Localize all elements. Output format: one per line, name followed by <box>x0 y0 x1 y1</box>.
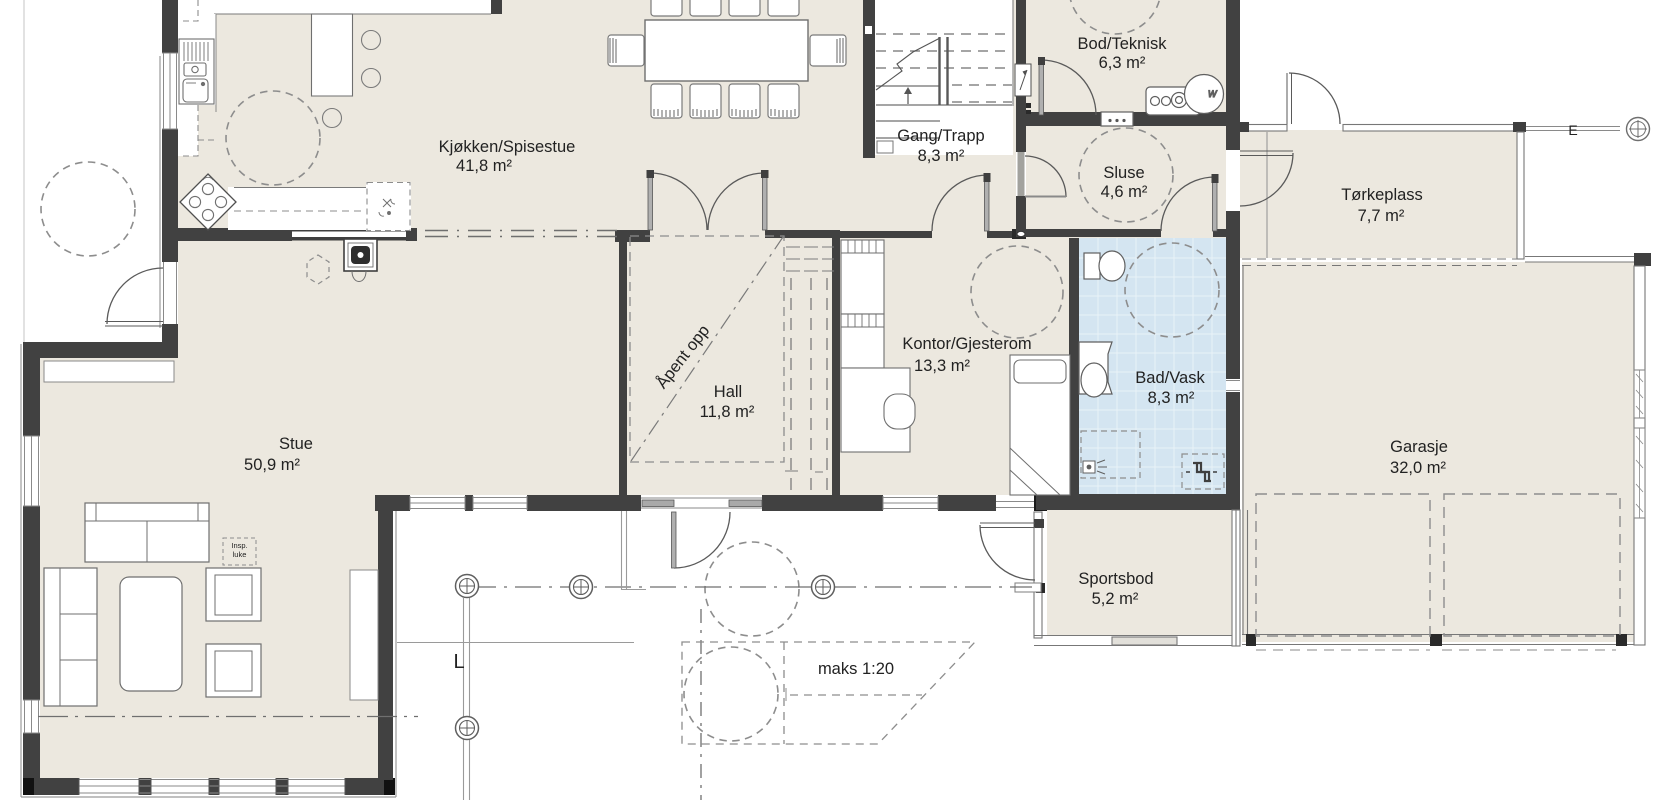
svg-text:41,8 m²: 41,8 m² <box>456 157 512 175</box>
svg-text:6,3 m²: 6,3 m² <box>1099 54 1146 72</box>
svg-text:Gang/Trapp: Gang/Trapp <box>897 127 984 145</box>
svg-text:Hall: Hall <box>714 383 742 401</box>
svg-text:luke: luke <box>233 550 247 559</box>
svg-text:8,3 m²: 8,3 m² <box>1148 389 1195 407</box>
svg-text:Kontor/Gjesterom: Kontor/Gjesterom <box>902 335 1031 353</box>
svg-text:Bad/Vask: Bad/Vask <box>1135 369 1205 387</box>
svg-text:13,3 m²: 13,3 m² <box>914 357 970 375</box>
svg-text:Tørkeplass: Tørkeplass <box>1341 186 1423 204</box>
svg-text:4,6 m²: 4,6 m² <box>1101 183 1148 201</box>
svg-text:11,8 m²: 11,8 m² <box>700 403 755 421</box>
svg-text:E: E <box>1568 122 1577 138</box>
svg-text:50,9 m²: 50,9 m² <box>244 456 300 474</box>
svg-text:7,7 m²: 7,7 m² <box>1358 207 1405 225</box>
svg-text:maks 1:20: maks 1:20 <box>818 660 894 678</box>
svg-text:L: L <box>453 651 464 673</box>
svg-text:Bod/Teknisk: Bod/Teknisk <box>1078 35 1168 53</box>
svg-text:8,3 m²: 8,3 m² <box>918 147 965 165</box>
svg-text:32,0 m²: 32,0 m² <box>1390 459 1446 477</box>
svg-text:5,2 m²: 5,2 m² <box>1092 590 1139 608</box>
svg-text:Sportsbod: Sportsbod <box>1078 570 1153 588</box>
svg-text:Stue: Stue <box>279 435 313 453</box>
svg-text:Insp.: Insp. <box>231 541 247 550</box>
svg-text:Kjøkken/Spisestue: Kjøkken/Spisestue <box>439 138 576 156</box>
svg-text:Garasje: Garasje <box>1390 438 1448 456</box>
svg-text:Sluse: Sluse <box>1103 164 1144 182</box>
